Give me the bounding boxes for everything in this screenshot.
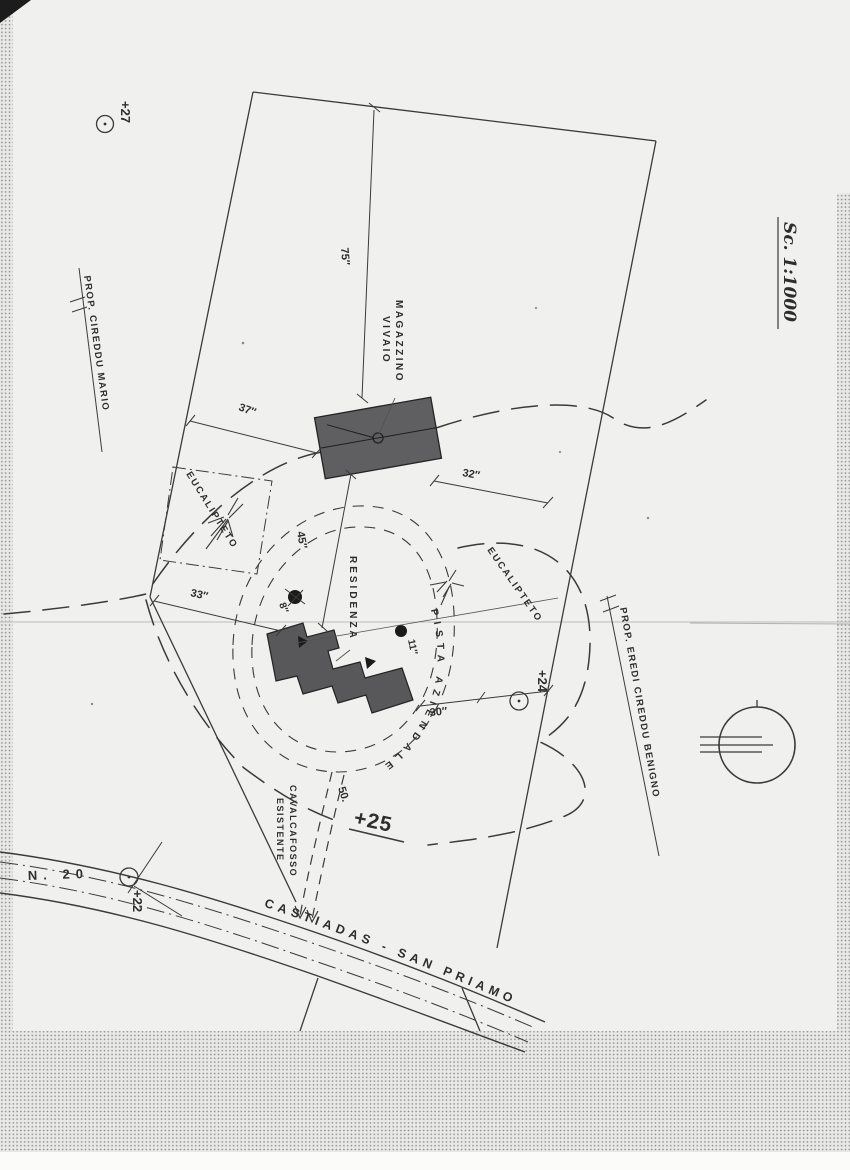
halftone-left-edge bbox=[0, 0, 13, 1152]
tree-symbol-filled-2 bbox=[395, 625, 407, 637]
label-esistente: ESISTENTE bbox=[275, 798, 285, 862]
label-cavalcafosso: CAVALCAFOSSO bbox=[288, 785, 298, 877]
paper-background bbox=[0, 0, 850, 1170]
halftone-right-edge bbox=[837, 193, 850, 1152]
elevation-24-label: +24 bbox=[535, 670, 550, 693]
elevation-27-label: +27 bbox=[118, 101, 133, 123]
label-residenza: RESIDENZA bbox=[347, 556, 358, 641]
halftone-bottom-band bbox=[0, 1031, 850, 1152]
label-magazzino: MAGAZZINO bbox=[393, 300, 404, 383]
scanned-site-plan-page: 75″ 37″ 32″ 45″ 33″ 30″ 50. 8″ 11″ +27 +… bbox=[0, 0, 850, 1170]
scale-label: Sc. 1:1000 bbox=[779, 222, 799, 322]
scale-label-group: Sc. 1:1000 bbox=[778, 217, 799, 329]
elevation-22-label: +22 bbox=[130, 890, 145, 912]
label-vivaio: VIVAIO bbox=[380, 316, 391, 364]
page-bottom-strip bbox=[0, 1152, 850, 1170]
dimension-75: 75″ bbox=[338, 247, 352, 266]
site-plan-drawing: 75″ 37″ 32″ 45″ 33″ 30″ 50. 8″ 11″ +27 +… bbox=[0, 0, 850, 1170]
label-road-number: N. 20 bbox=[28, 866, 90, 883]
